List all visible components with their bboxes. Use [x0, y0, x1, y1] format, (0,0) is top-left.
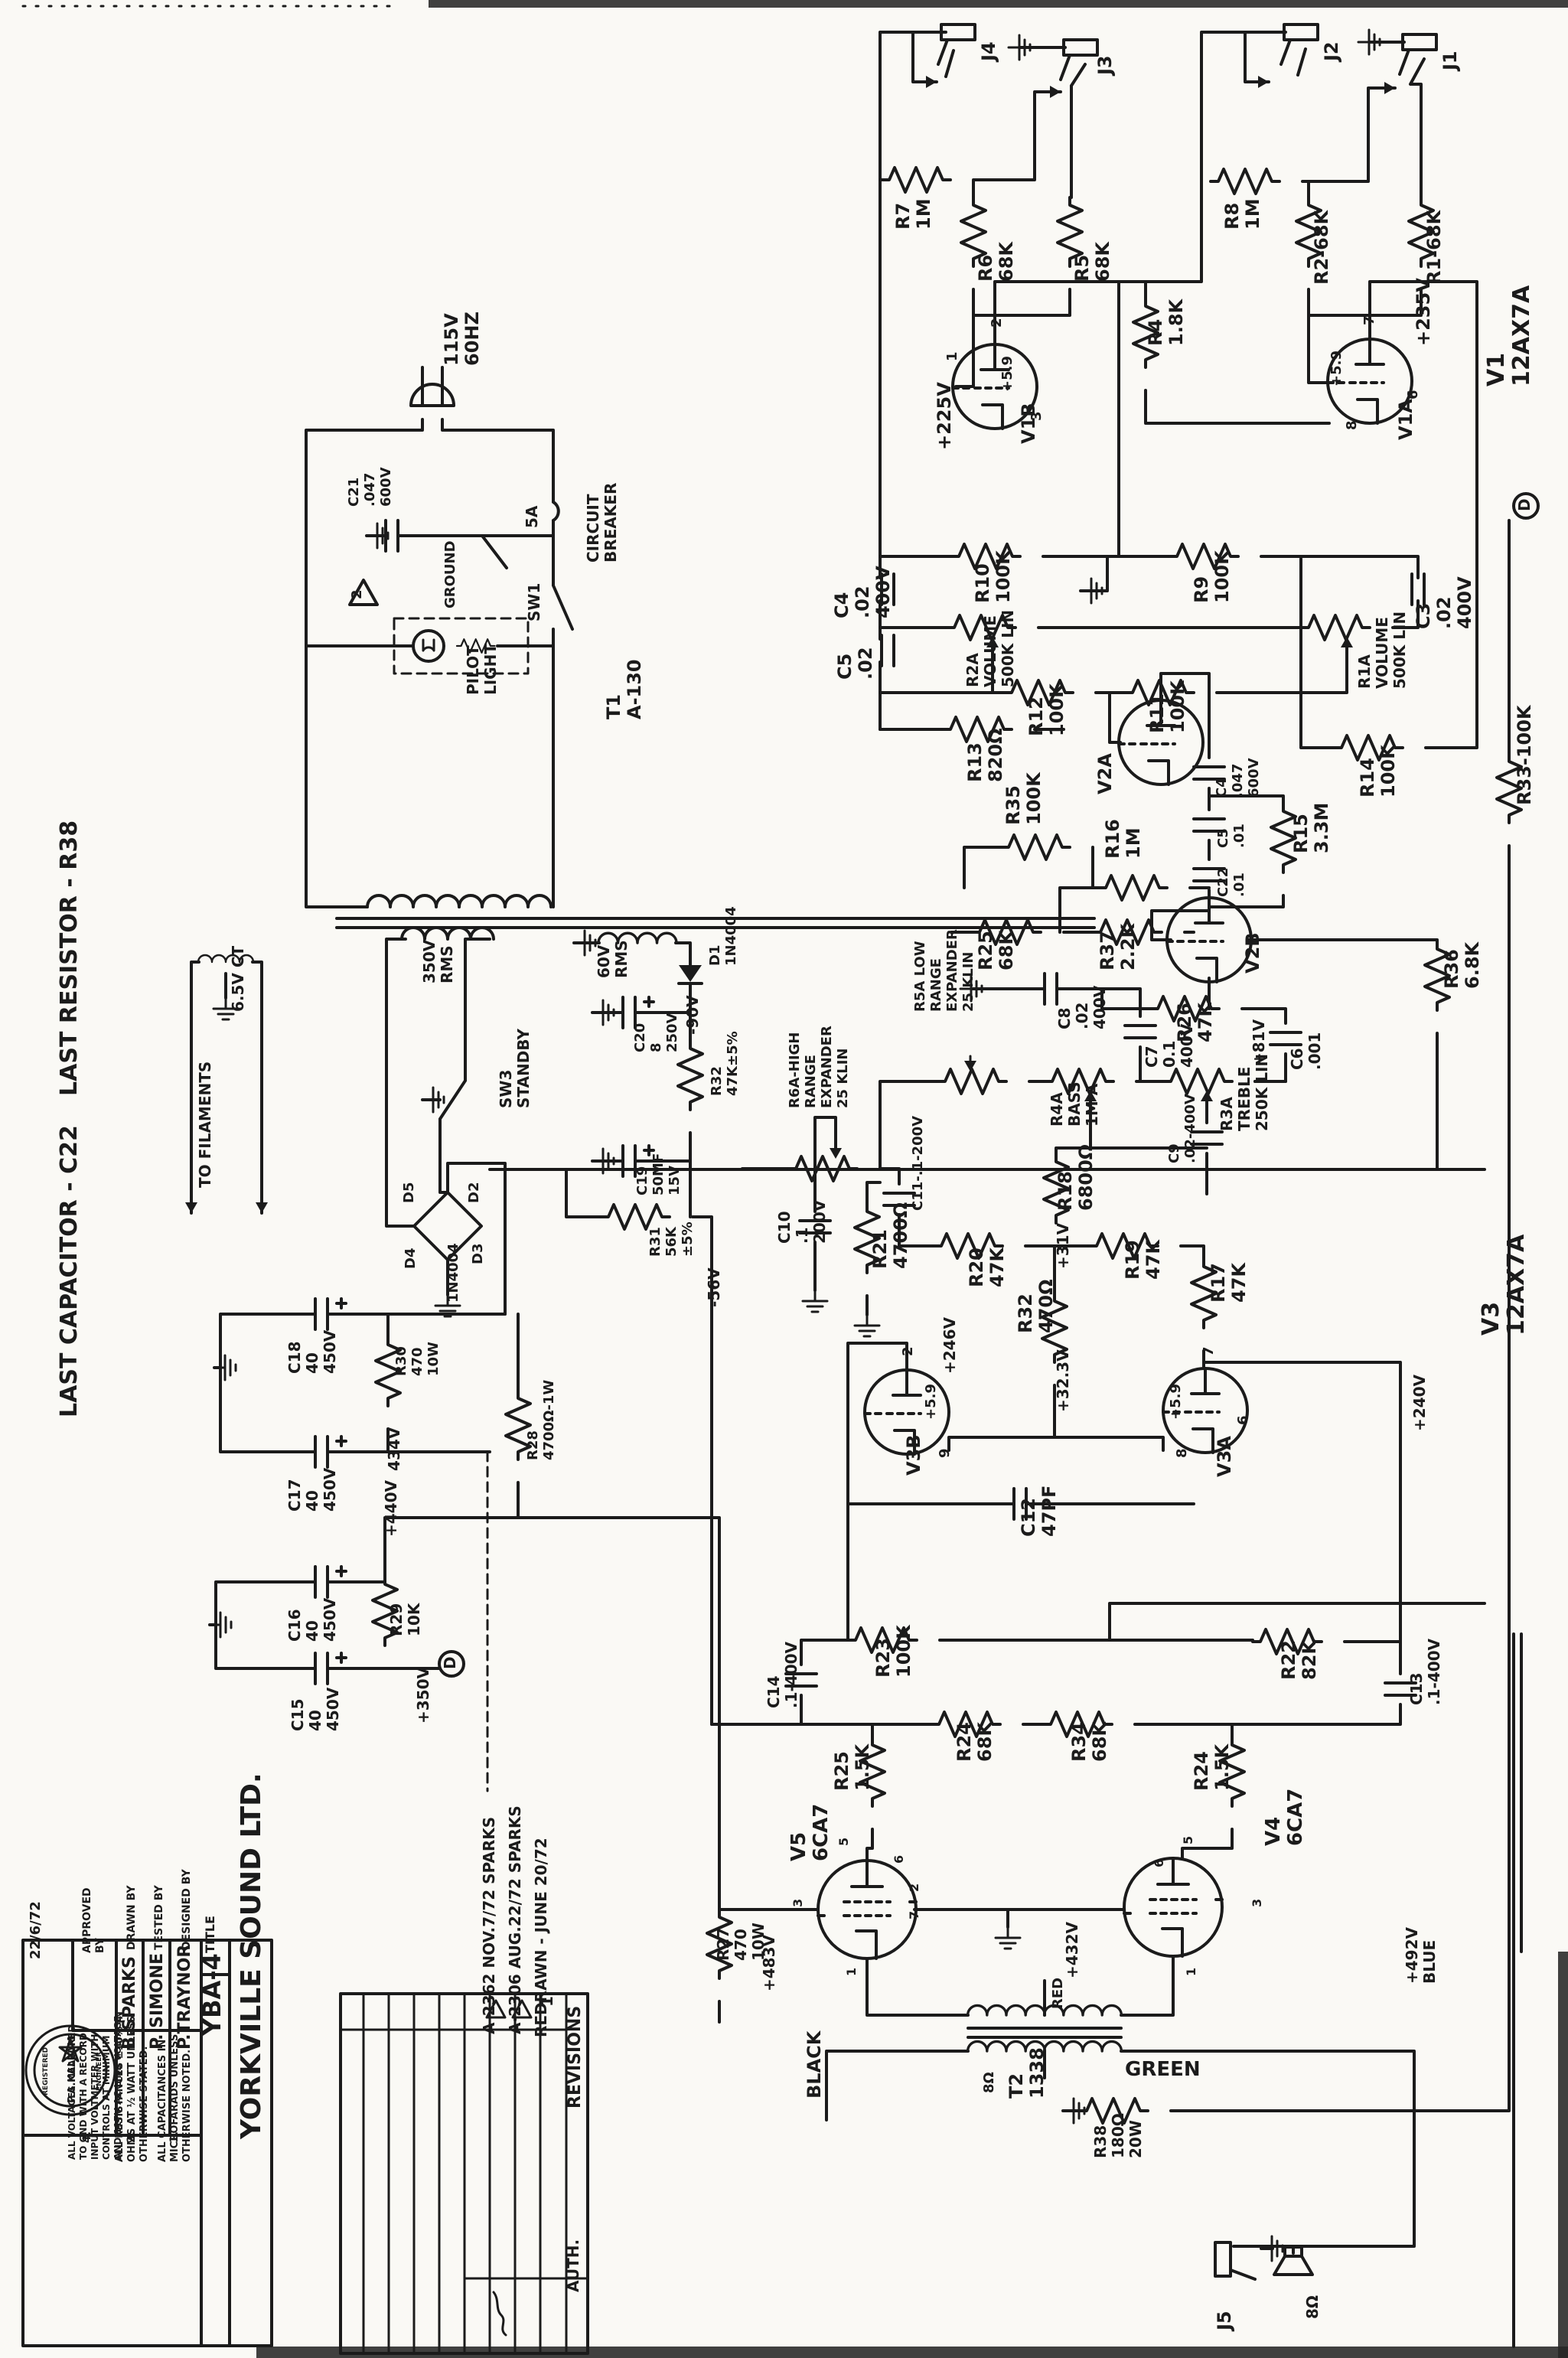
label-d2: D2: [466, 1182, 482, 1203]
label-6: 6: [1405, 390, 1421, 400]
label-designed-by: DESIGNED BY: [181, 1868, 193, 1950]
label-sw1: SW1: [525, 583, 543, 621]
label-22-6-72: 22/6/72: [28, 1901, 44, 1959]
label-9: 9: [937, 1448, 953, 1458]
label-5a: 5A: [523, 505, 541, 528]
label-240v: +240V: [1410, 1374, 1429, 1431]
label-6: 6: [1235, 1415, 1251, 1425]
label-all-capacitances-in: ALL CAPACITANCES INMICROFARADS UNLESSOTH…: [157, 2034, 193, 2162]
label-r19: R1947K: [1122, 1239, 1164, 1280]
label-j4: J4: [978, 41, 999, 63]
label-v2b: V2B: [1242, 932, 1263, 974]
label-r31: R3156K±5%: [647, 1221, 696, 1257]
label-d: D: [1515, 498, 1534, 511]
label-auth: AUTH.: [564, 2239, 582, 2292]
label-1: 1: [844, 1968, 859, 1976]
label-7: 7: [1201, 1346, 1217, 1356]
label-j3: J3: [1094, 55, 1116, 77]
label-d5: D5: [401, 1182, 417, 1203]
label-pilot: PILOTLIGHT: [464, 644, 500, 695]
label-8: 8: [1174, 1448, 1190, 1458]
scan-band-top: [429, 0, 1568, 8]
label-8: 8Ω: [1303, 2295, 1322, 2319]
label-r2-68k: R2-68K: [1311, 209, 1332, 285]
label-last-capacitor-c22: LAST CAPACITOR - C22: [56, 1125, 83, 1417]
label-j1: J1: [1439, 51, 1461, 72]
label-title: TITLE: [203, 1916, 217, 1953]
label-last-resistor-r38: LAST RESISTOR - R38: [56, 820, 83, 1096]
label-7: 7: [907, 1911, 921, 1919]
label-r1-68k: R1-68K: [1423, 209, 1445, 285]
label-3: 3: [1250, 1899, 1264, 1907]
label-r24: R2468K: [954, 1721, 996, 1762]
label-v2a: V2A: [1094, 753, 1116, 794]
label-yorkville-sound-ltd: YORKVILLE SOUND LTD.: [236, 1773, 267, 2140]
label-circuit: CIRCUITBREAKER: [584, 483, 620, 563]
label-r34: R3468K: [1068, 1721, 1110, 1762]
label-434v: 434V: [385, 1427, 403, 1471]
label-to-filaments: TO FILAMENTS: [196, 1062, 214, 1188]
label-yba-4: YBA-4: [197, 1953, 227, 2037]
label-r22: R2282K: [1278, 1639, 1320, 1680]
label-j2: J2: [1321, 41, 1342, 63]
label-60v: 60VRMS: [595, 940, 631, 978]
label-black: BLACK: [804, 2030, 825, 2099]
label-r8: R81M: [1221, 198, 1263, 230]
label-r25: R2568K: [975, 930, 1017, 970]
label-1: 1: [1184, 1968, 1198, 1976]
label-p-traynor: P.TRAYNOR: [175, 1945, 194, 2050]
label-green: GREEN: [1125, 2058, 1201, 2081]
label-1: 1: [944, 351, 960, 361]
label-registered: REGISTERED: [42, 2047, 50, 2095]
label-5: 5: [836, 1838, 851, 1846]
label-432v: +432V: [1063, 1921, 1081, 1978]
label-r17: R1747K: [1208, 1262, 1250, 1303]
label-5-9: +5.9: [1328, 351, 1345, 386]
label-r29: R2910K: [387, 1602, 423, 1636]
label-v1a: V1A: [1395, 399, 1416, 440]
label-5-9: +5.9: [923, 1384, 939, 1420]
label-483v: +483V: [760, 1934, 778, 1991]
label-v3a: V3A: [1214, 1436, 1235, 1477]
label-31v: +31V: [1054, 1222, 1072, 1269]
label-2: 2: [907, 1883, 921, 1892]
label-r7: R71M: [892, 198, 934, 230]
label-d4: D4: [403, 1248, 419, 1269]
label-8: 8Ω: [981, 2072, 997, 2093]
label-red: RED: [1050, 1978, 1066, 2009]
label-revisions: REVISIONS: [566, 2006, 585, 2109]
label-6: 6: [892, 1855, 906, 1864]
label-350v: 350VRMS: [420, 939, 456, 983]
label-350v: +350V: [414, 1666, 432, 1724]
label-7: 7: [1361, 315, 1377, 325]
label-tested-by: TESTED BY: [153, 1884, 165, 1950]
label-a-2362-nov-7-72-sparks: A-2362 NOV.7/72 SPARKS: [480, 1817, 498, 2034]
label-p-simone: P. SIMONE: [148, 1953, 167, 2050]
schematic-canvas: YORKVILLE SOUND LTD. — YBA-4 amplifier s…: [0, 0, 1568, 2358]
label-225v: +225V: [934, 382, 955, 450]
label-5: 5: [1181, 1836, 1195, 1844]
label-56v: -56V: [705, 1267, 723, 1307]
scan-band-right: [1558, 1952, 1568, 2358]
label-3: 3: [1028, 411, 1045, 421]
label-j5: J5: [1214, 2311, 1235, 2332]
label-v3b: V3B: [903, 1434, 924, 1476]
label-2: 2: [900, 1346, 916, 1356]
label-a-2306-aug-22-72-sparks: A·2306 AUG.22/72 SPARKS: [506, 1805, 524, 2034]
label-6: 6: [1152, 1859, 1166, 1867]
label-2: 2: [989, 318, 1005, 328]
label-3: 3: [791, 1899, 805, 1907]
label-5-9: +5.9: [1168, 1384, 1184, 1420]
label-32-3v: +32.3V: [1054, 1349, 1072, 1412]
label-1n4004: 1N4004: [445, 1243, 461, 1303]
label-r26: R2647K: [1174, 1002, 1216, 1042]
label-v1b: V1B: [1018, 403, 1039, 444]
label-115v: 115V60HZ: [441, 311, 483, 366]
label-8: 8: [1344, 420, 1360, 430]
label-all-voltages-measured: ALL VOLTAGES MEASUREDTO GND WITH A RECOR…: [67, 2012, 123, 2160]
label-2: 2: [349, 589, 365, 599]
label-r20: R2047K: [966, 1247, 1008, 1287]
label-440v: +440V: [382, 1479, 400, 1537]
label-6-5v-ct: 6.5V CT: [229, 945, 247, 1012]
label-5-9: +5.9: [999, 356, 1015, 392]
label-c11-1-200v: C11-.1-200V: [910, 1116, 926, 1211]
label-235v: +235V: [1413, 278, 1434, 346]
label-d: D: [441, 1656, 459, 1669]
label-90v: -90V: [683, 995, 702, 1035]
label-drawn-by: DRAWN BY: [126, 1884, 138, 1950]
label-ground: GROUND: [442, 540, 458, 608]
label-redrawn-june-20-72: REDRAWN - JUNE 20/72: [532, 1838, 550, 2037]
label-d3: D3: [470, 1244, 486, 1264]
label-246v: +246V: [940, 1316, 959, 1374]
label-r33-100k: R33-100K: [1514, 704, 1535, 805]
